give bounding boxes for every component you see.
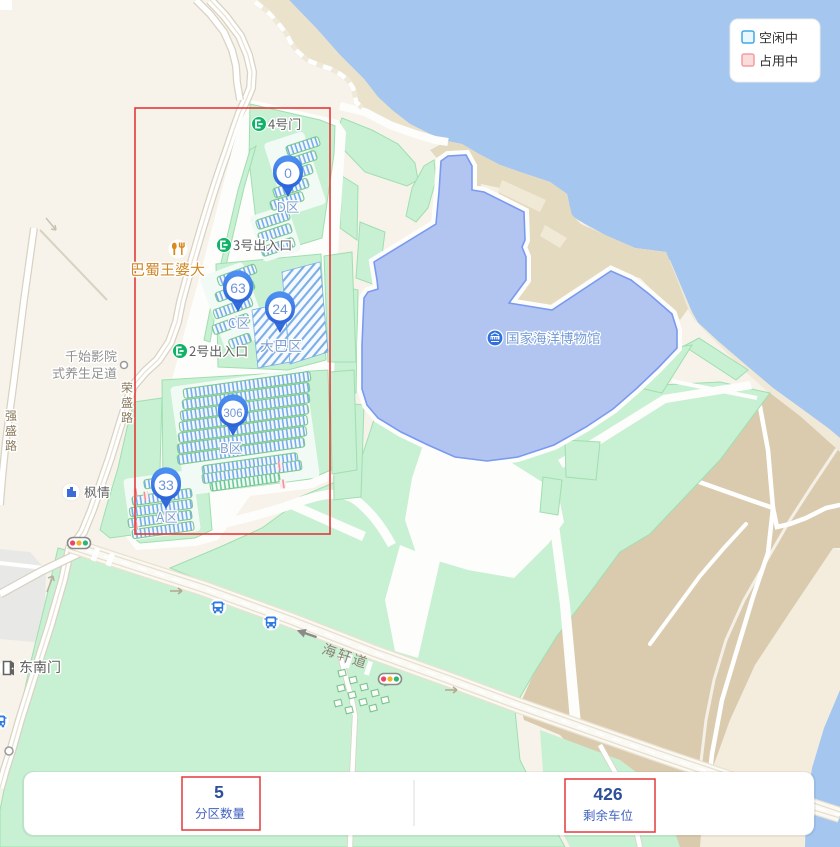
svg-text:24: 24 [272, 301, 288, 317]
svg-text:33: 33 [158, 477, 174, 493]
svg-text:0: 0 [284, 165, 292, 181]
svg-text:63: 63 [230, 280, 246, 296]
svg-text:5: 5 [214, 782, 224, 802]
svg-text:426: 426 [593, 784, 622, 804]
svg-text:306: 306 [223, 408, 242, 420]
